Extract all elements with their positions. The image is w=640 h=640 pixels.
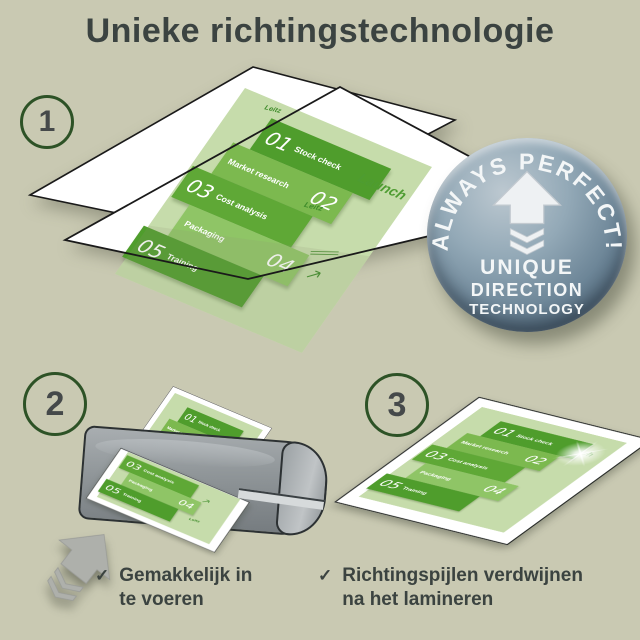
band-number: 04: [479, 483, 510, 497]
badge-line-unique: UNIQUE: [427, 256, 627, 280]
step-2-circle: 2: [23, 372, 87, 436]
caption-text: Gemakkelijk in te voeren: [119, 564, 252, 612]
badge-line-direction: DIRECTION: [427, 280, 627, 301]
band-label: Stock check: [514, 433, 555, 446]
band-number: 04: [176, 497, 196, 511]
band-number: 05: [103, 483, 123, 497]
caption-line-2: te voeren: [119, 589, 203, 610]
caption-line-2: na het lamineren: [342, 589, 493, 610]
doc-direction-arrow-icon: [200, 497, 213, 506]
band-number: 03: [124, 459, 144, 473]
band-label: Training: [401, 486, 430, 496]
step-3-circle: 3: [365, 373, 429, 437]
badge-line-technology: TECHNOLOGY: [427, 301, 627, 318]
always-perfect-badge: ALWAYS PERFECT! UNIQUE DIRECTION TECHNOL…: [427, 138, 627, 332]
up-arrow-icon: [485, 170, 569, 262]
infographic-page: { "title": "Unieke richtingstechnologie"…: [0, 0, 640, 640]
step2-caption: ✓ Gemakkelijk in te voeren: [95, 564, 252, 612]
step-number: 3: [388, 386, 407, 425]
band-label: Packaging: [418, 470, 454, 481]
caption-text: Richtingspijlen verdwijnen na het lamine…: [342, 564, 583, 612]
checkmark-icon: ✓: [95, 564, 109, 612]
step3-caption: ✓ Richtingspijlen verdwijnen na het lami…: [318, 564, 583, 612]
caption-line-1: Gemakkelijk in: [119, 565, 252, 586]
step-number: 2: [46, 385, 65, 424]
badge-caption: UNIQUE DIRECTION TECHNOLOGY: [427, 256, 627, 318]
laminator-end-cap: [275, 441, 330, 538]
doc-watermark-logo: Leitz: [188, 517, 200, 523]
band-label: Training: [122, 492, 143, 503]
caption-line-1: Richtingspijlen verdwijnen: [342, 565, 583, 586]
band-label: Cost analysis: [446, 457, 491, 471]
band-label: Stock check: [197, 419, 221, 432]
checkmark-icon: ✓: [318, 564, 332, 612]
